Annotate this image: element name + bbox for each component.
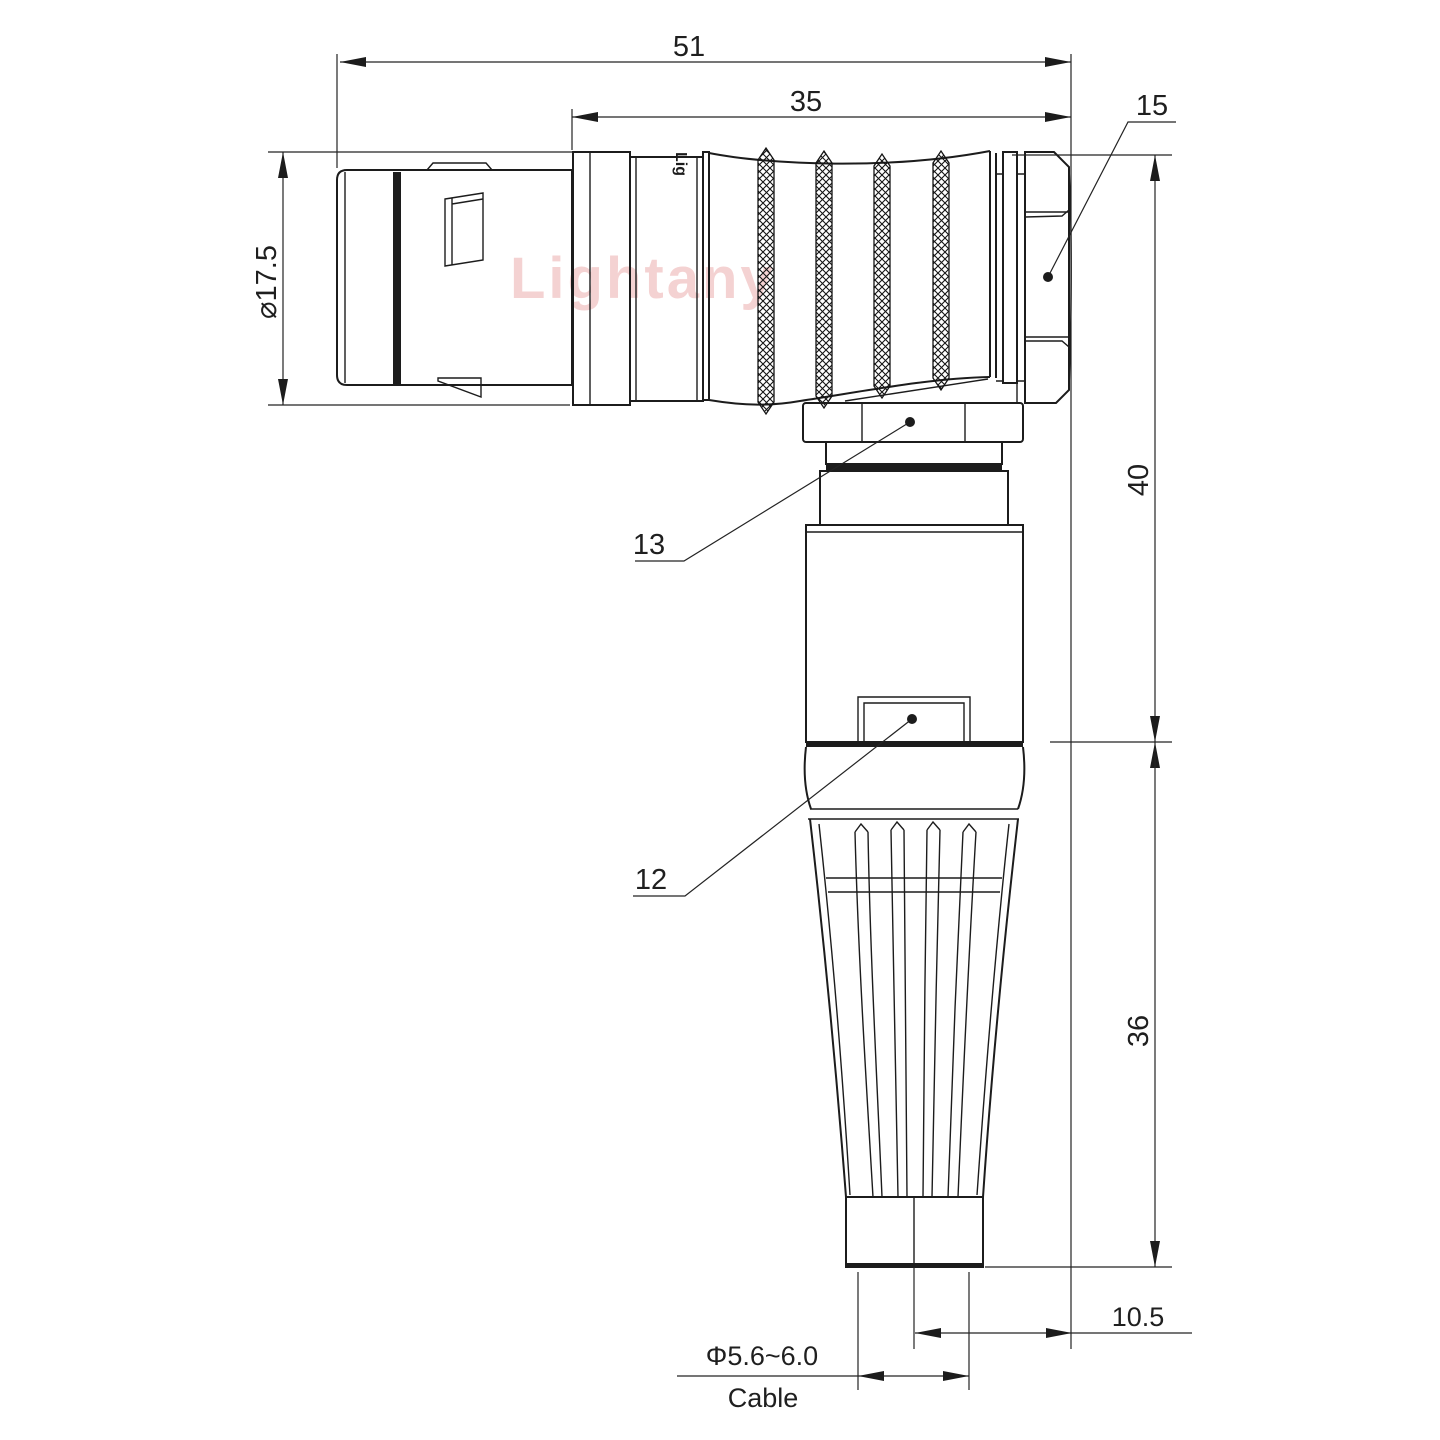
latch-window — [445, 193, 483, 266]
technical-drawing-page: Lightany Lig — [0, 0, 1440, 1440]
dim-height-upper: 40 — [1123, 464, 1155, 496]
latch-ramp — [438, 378, 481, 397]
sleeve-keyway-band — [393, 172, 401, 384]
barrel-engraving: Lig — [672, 152, 689, 176]
label-collar: 13 — [633, 529, 665, 561]
dim-height-lower: 36 — [1123, 1015, 1155, 1047]
dim-overall-length: 51 — [673, 31, 705, 63]
elbow-vertical-body — [803, 403, 1024, 1268]
dim-coupling-diameter: ⌀17.5 — [251, 245, 283, 319]
knurl-band — [758, 148, 949, 414]
dimension-annotations: 51 35 ⌀17.5 40 36 10.5 Φ5.6~6.0 Cable — [251, 31, 1192, 1413]
connector-drawing: Lightany Lig — [0, 0, 1440, 1440]
dim-rear-length: 35 — [790, 86, 822, 118]
cable-label: Cable — [728, 1383, 799, 1413]
dim-cable-diameter: Φ5.6~6.0 — [706, 1341, 818, 1371]
watermark: Lightany — [510, 246, 776, 311]
dim-cable-offset: 10.5 — [1112, 1302, 1165, 1332]
label-backnut: 15 — [1136, 90, 1168, 122]
part-leader-labels: 15 13 12 — [633, 90, 1176, 896]
label-latch: 12 — [635, 864, 667, 896]
